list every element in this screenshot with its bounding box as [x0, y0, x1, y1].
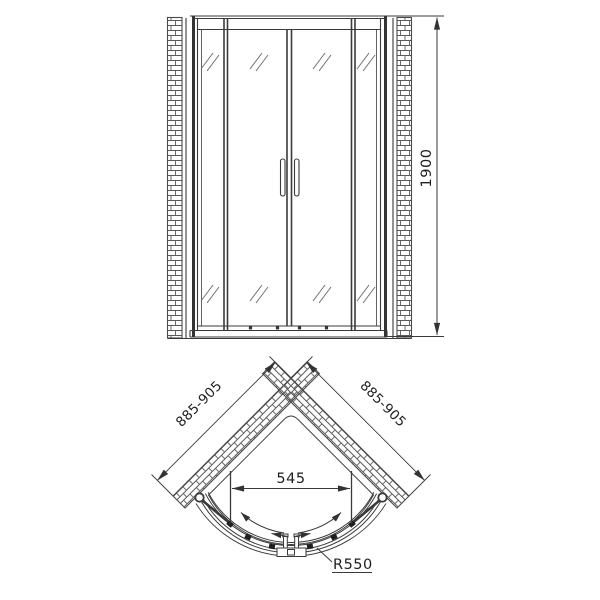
- door-rollers: [249, 326, 328, 329]
- opening-dimension-label: 545: [276, 471, 305, 487]
- height-dimension-1900: [387, 18, 444, 337]
- technical-drawing-page: 1900: [0, 0, 600, 600]
- front-elevation-view: [168, 16, 445, 339]
- right-wall-post: [378, 493, 386, 501]
- height-dimension-label: 1900: [419, 149, 435, 188]
- shower-enclosure-drawing: 1900: [0, 0, 600, 600]
- right-wall-dimension-label: 885-905: [356, 378, 409, 431]
- left-wall-profile: [192, 17, 195, 338]
- track-rollers: [226, 520, 356, 549]
- elevation-left-wall-hatch: [168, 18, 183, 339]
- left-door-handle: [281, 159, 286, 196]
- elevation-right-wall-hatch: [397, 18, 412, 339]
- plan-view: [152, 357, 431, 573]
- radius-dimension-label: R550: [333, 557, 373, 573]
- right-door-handle: [295, 159, 300, 196]
- sliding-door-track: [199, 492, 383, 553]
- left-wall-dimension-label: 885-905: [173, 378, 226, 431]
- left-wall-post: [195, 493, 203, 501]
- door-stiles: [224, 19, 355, 331]
- right-wall-profile: [384, 17, 387, 338]
- door-motion-arrows: [241, 513, 341, 537]
